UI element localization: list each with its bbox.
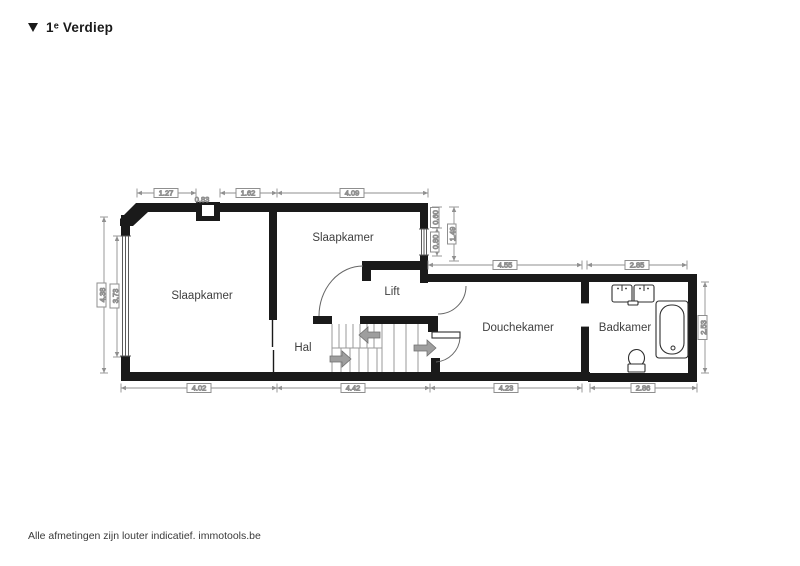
dim-left-column: 4.38 3.73 [97, 217, 121, 373]
wall-stairhall-seg1 [313, 316, 332, 324]
dim-top-right-wall: 4.09 [345, 189, 360, 198]
dim-bottom-3: 4.23 [499, 384, 514, 393]
douchekamer-upper-door-arc [438, 286, 466, 314]
room-label-lift: Lift [384, 286, 400, 298]
wall-lift-top [362, 261, 428, 270]
disclaimer-text: Alle afmetingen zijn louter indicatief. … [28, 530, 261, 542]
wall-right-bedroom-upper [420, 203, 428, 229]
chimney-recess [202, 205, 214, 216]
dim-right-column: 2.53 [698, 282, 709, 373]
dim-right-upper-wall: 0.60 [431, 210, 440, 225]
dim-badkamer-height: 2.53 [699, 320, 708, 335]
floorplan-page: 1ᵉ Verdiep [0, 0, 800, 566]
stair-direction-arrow-left-icon [359, 327, 380, 343]
wall-bottom-badkamer [588, 373, 697, 382]
dim-middle-row: 4.55 2.85 [428, 261, 687, 270]
wall-right-outer [688, 274, 697, 382]
bathtub-icon [656, 301, 688, 358]
dim-chimney: 0.83 [195, 195, 210, 204]
window-right-bedroom [419, 229, 429, 255]
wall-douche-left-stub-b [431, 358, 440, 373]
dim-left-window: 3.73 [111, 289, 120, 304]
wall-left-top-stub [121, 215, 130, 236]
wall-douche-bad-divider-bottom [581, 327, 589, 373]
wall-top [137, 203, 428, 212]
dim-badkamer-width-top: 2.85 [630, 261, 645, 270]
dim-right-upper-column: 0.60 0.80 1.49 [431, 207, 460, 261]
dim-left-outer: 4.38 [98, 288, 107, 303]
room-label-douchekamer: Douchekamer [482, 322, 554, 334]
room-label-slaapkamer-left: Slaapkamer [171, 290, 233, 302]
room-label-hal: Hal [294, 342, 311, 354]
dim-bottom-2: 4.42 [346, 384, 361, 393]
wall-stairhall-seg2 [360, 316, 430, 324]
wall-douche-bad-divider-top [581, 282, 589, 303]
dim-bottom-row: 4.02 4.42 4.23 2.86 [121, 384, 697, 393]
room-label-badkamer: Badkamer [599, 322, 652, 334]
wall-bottom-main [121, 372, 590, 381]
dim-top-mid-wall: 1.62 [241, 189, 256, 198]
floorplan-drawing: Slaapkamer Slaapkamer Lift Hal Douchekam… [0, 0, 800, 566]
dim-bottom-1: 4.02 [192, 384, 207, 393]
dim-bottom-4: 2.86 [636, 384, 651, 393]
douchekamer-lower-door-leaf [432, 332, 460, 338]
room-label-slaapkamer-right: Slaapkamer [312, 232, 374, 244]
corridor-direction-arrow-icon [414, 340, 436, 356]
bedroom-door-leaf [273, 320, 274, 374]
dim-douchekamer-width: 4.55 [498, 261, 513, 270]
window-left [120, 236, 131, 356]
dim-top-left-wall: 1.27 [159, 189, 174, 198]
lift-door-arc [319, 266, 363, 316]
dim-right-upper-total: 1.49 [448, 227, 457, 242]
toilet-icon [628, 350, 645, 373]
wall-bedroom-divider [269, 212, 277, 320]
wall-lift-stub [362, 261, 371, 281]
dim-top-row: 1.27 1.62 4.09 0.83 [137, 189, 428, 205]
badkamer-door-opening [581, 304, 589, 327]
double-sink-icon [612, 285, 654, 305]
wall-bathrooms-top [428, 274, 697, 282]
dim-right-upper-window: 0.80 [431, 235, 440, 250]
